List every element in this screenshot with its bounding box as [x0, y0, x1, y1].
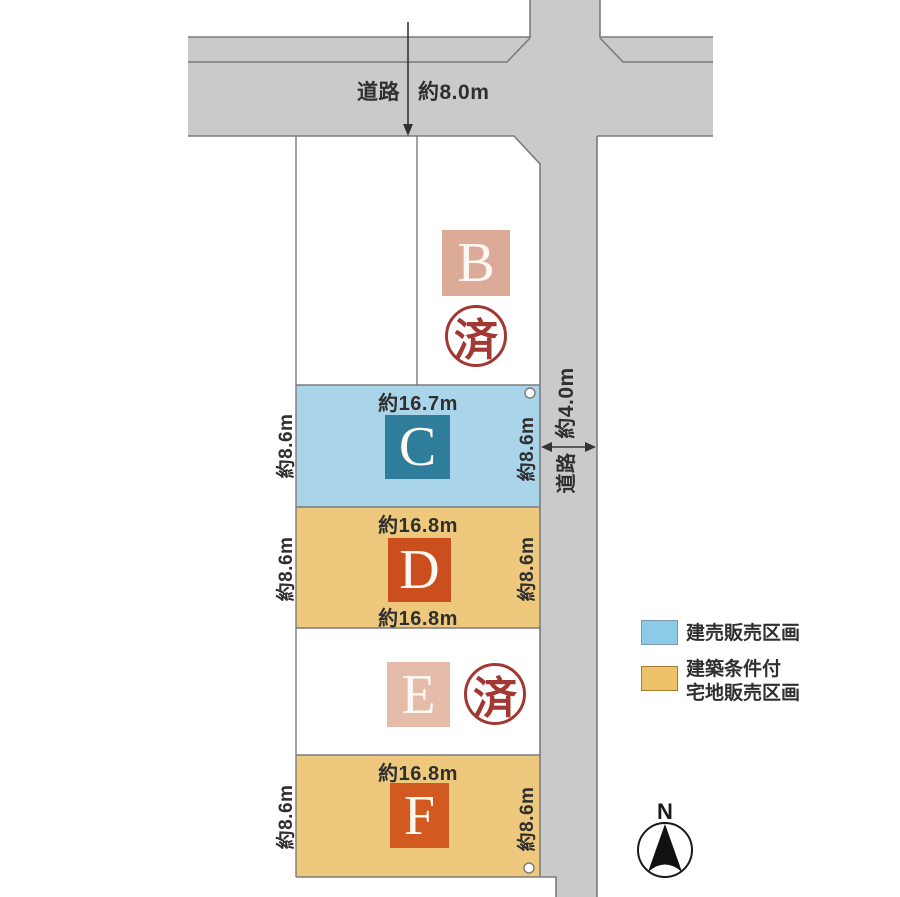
corner-marker — [524, 863, 534, 873]
lot-d-badge: D — [388, 538, 451, 602]
lot-f-dim-top: 約16.8m — [333, 757, 503, 786]
lot-f-badge: F — [390, 783, 449, 848]
road-right-top-stub — [530, 0, 600, 37]
lot-c-dim-top: 約16.7m — [333, 387, 503, 416]
corner-marker — [525, 388, 535, 398]
lot-c-badge: C — [385, 415, 450, 479]
road-right-bottom-surface — [556, 877, 597, 897]
lot-e-badge: E — [387, 662, 450, 727]
lot-d-dim-bottom: 約16.8m — [333, 602, 503, 631]
road-right-name-label: 道路 — [556, 428, 578, 518]
road-top-width-label: 約8.0m — [418, 76, 489, 106]
legend-swatch-land-with-conditions — [641, 666, 678, 691]
lot-c-dim-left: 約8.6m — [276, 401, 298, 491]
lot-d-dim-left: 約8.6m — [276, 524, 298, 614]
compass-icon — [638, 823, 692, 877]
lot-c-dim-right: 約8.6m — [517, 404, 539, 494]
lot-d-dim-right: 約8.6m — [517, 524, 539, 614]
compass-north-label: N — [650, 799, 680, 825]
lot-a-area — [296, 136, 417, 385]
lot-d-dim-top: 約16.8m — [333, 509, 503, 538]
legend-label-line2: 宅地販売区画 — [686, 682, 800, 706]
road-top-name-label: 道路 — [320, 76, 400, 106]
lot-b-badge: B — [442, 230, 510, 296]
legend-label-line1: 建築条件付 — [686, 658, 800, 682]
legend-swatch-build-for-sale — [641, 620, 678, 645]
lot-b-sold-stamp: 済 — [445, 305, 507, 367]
lot-layout-diagram: 道路 約8.0m 約4.0m 道路 B 済 約16.7m C 約8.6m 約8.… — [0, 0, 900, 897]
lot-e-sold-stamp: 済 — [464, 663, 526, 725]
legend-label-build-for-sale: 建売販売区画 — [686, 622, 800, 646]
lot-f-dim-right: 約8.6m — [517, 774, 539, 864]
lot-f-dim-left: 約8.6m — [276, 772, 298, 862]
legend-label-land-with-conditions: 建築条件付 宅地販売区画 — [686, 658, 800, 706]
